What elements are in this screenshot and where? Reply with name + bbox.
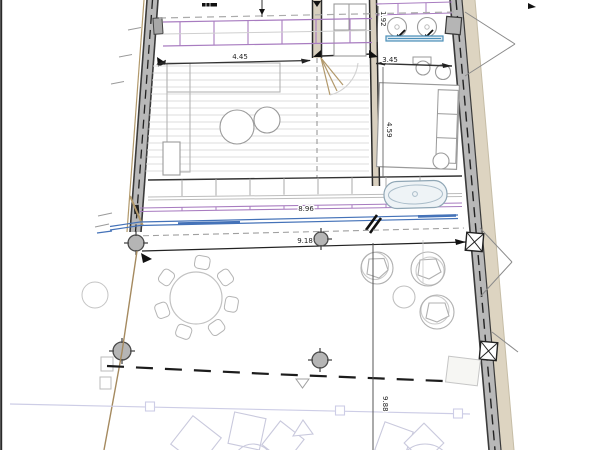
utility-node [454, 409, 463, 418]
utility-node [146, 402, 155, 411]
dining-set [154, 255, 240, 341]
coffee-table [220, 110, 254, 144]
dimension-label-facade: 8.96 [298, 205, 314, 213]
chair [224, 296, 239, 313]
floor-plan-canvas: 4.45 3.45 1.92 4.59 8.96 9.18 9.88 [0, 0, 600, 450]
column-marker [465, 232, 484, 251]
chair [194, 255, 211, 270]
column-marker [479, 341, 498, 360]
dimension-label-living-width: 4.45 [232, 53, 248, 61]
bedside-stool [433, 153, 449, 169]
garden-shed-outline [446, 356, 481, 386]
chair [174, 323, 193, 340]
chair [154, 301, 171, 320]
door-swing-arc [330, 63, 358, 95]
survey-marker [308, 348, 332, 372]
shrub [393, 286, 415, 308]
shrub-cluster [361, 252, 454, 329]
utility-node [336, 406, 345, 415]
benchmark-triangle [296, 379, 309, 388]
right-site-wall [445, 0, 518, 450]
coffee-table [254, 107, 280, 133]
direction-arrow [528, 3, 536, 9]
kitchen-unit [163, 142, 180, 175]
roof-overhang-dashed [159, 12, 455, 18]
pendant-light [416, 61, 430, 75]
scale-bar [202, 3, 217, 7]
wall-pier [153, 18, 163, 35]
dining-table [170, 272, 222, 324]
glass-balustrade [97, 215, 458, 233]
hall-door-swing [321, 58, 343, 95]
fence-pier [101, 357, 113, 371]
vanity-counter [386, 36, 443, 41]
line-arrow [455, 239, 466, 245]
stepping-stones [171, 412, 453, 450]
setback-dashed-line [133, 228, 464, 236]
shrub [82, 282, 108, 308]
property-boundary-dashed [107, 366, 443, 381]
dimension-label-suite-width: 3.45 [382, 56, 398, 64]
north-reference [259, 0, 265, 17]
dimension-label-terrace: 9.18 [297, 237, 313, 245]
dimension-label-vanity-depth: 1.92 [379, 11, 387, 27]
line-arrow [141, 253, 152, 263]
shrub [418, 259, 441, 279]
bathtub [384, 180, 448, 209]
dimension-label-garden-depth: 9.88 [381, 396, 389, 412]
boundary-door-leaf [445, 16, 461, 34]
dimension-label-bedroom-depth: 4.59 [385, 122, 393, 138]
fence-pier [100, 377, 111, 389]
